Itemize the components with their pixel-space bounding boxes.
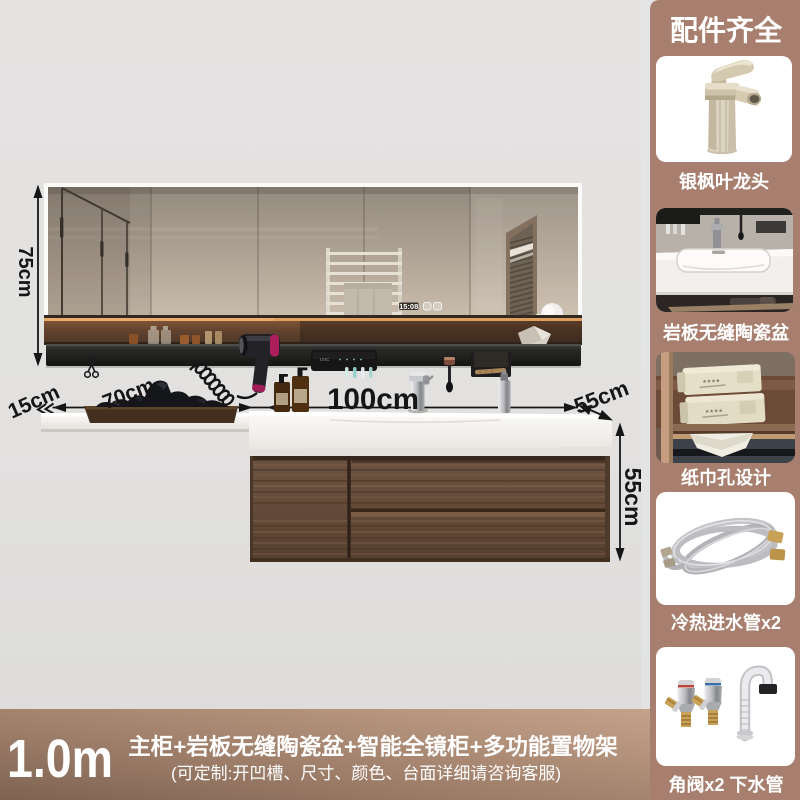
svg-text:UVC: UVC bbox=[320, 357, 330, 362]
svg-text:岩板无缝陶瓷盆: 岩板无缝陶瓷盆 bbox=[662, 322, 790, 343]
svg-text:(可定制:开凹槽、尺寸、颜色、台面详细请咨询客服): (可定制:开凹槽、尺寸、颜色、台面详细请咨询客服) bbox=[171, 764, 561, 783]
svg-text:纸巾孔设计: 纸巾孔设计 bbox=[681, 467, 771, 488]
svg-text:15:08: 15:08 bbox=[399, 302, 418, 311]
svg-text:★★★★: ★★★★ bbox=[702, 378, 721, 385]
svg-text:★★★★: ★★★★ bbox=[705, 408, 724, 415]
svg-text:角阀x2 下水管: 角阀x2 下水管 bbox=[668, 774, 783, 795]
svg-text:75cm: 75cm bbox=[14, 246, 36, 297]
svg-text:冷热进水管x2: 冷热进水管x2 bbox=[671, 612, 781, 633]
svg-text:主柜+岩板无缝陶瓷盆+智能全镜柜+多功能置物架: 主柜+岩板无缝陶瓷盆+智能全镜柜+多功能置物架 bbox=[128, 734, 618, 760]
svg-text:100cm: 100cm bbox=[327, 383, 419, 416]
svg-text:银枫叶龙头: 银枫叶龙头 bbox=[679, 171, 769, 192]
svg-text:配件齐全: 配件齐全 bbox=[670, 14, 783, 46]
svg-text:1.0m: 1.0m bbox=[7, 729, 113, 789]
